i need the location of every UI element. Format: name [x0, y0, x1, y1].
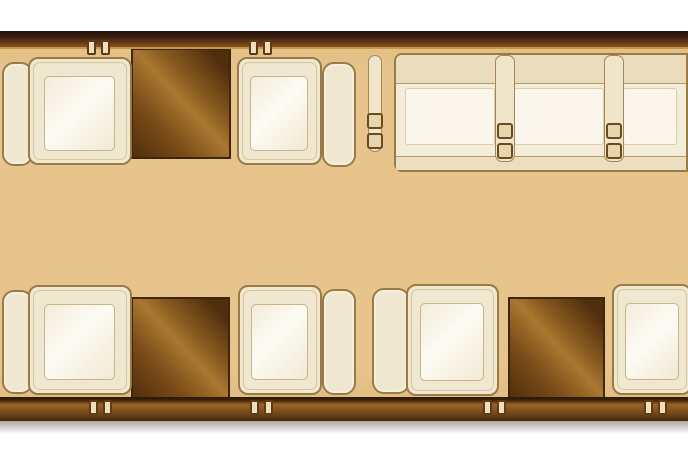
anchor-knob [250, 400, 259, 415]
anchor-knob [101, 40, 110, 55]
anchor-knob [249, 40, 258, 55]
anchor-knob [264, 400, 273, 415]
aircraft-cabin-floorplan [0, 0, 688, 458]
anchor-knob [87, 40, 96, 55]
wall-anchor-top [87, 40, 112, 55]
anchor-knob [263, 40, 272, 55]
wall-anchor-bottom [250, 400, 275, 415]
anchor-knob [483, 400, 492, 415]
wall-anchor-top [249, 40, 274, 55]
wall-anchor-bottom [89, 400, 114, 415]
anchor-knob [658, 400, 667, 415]
wall-anchor-bottom [644, 400, 669, 415]
wall-anchor-bottom [483, 400, 508, 415]
anchor-knob [644, 400, 653, 415]
anchor-knob [89, 400, 98, 415]
anchor-knob [103, 400, 112, 415]
anchor-layer [0, 0, 688, 458]
anchor-knob [497, 400, 506, 415]
